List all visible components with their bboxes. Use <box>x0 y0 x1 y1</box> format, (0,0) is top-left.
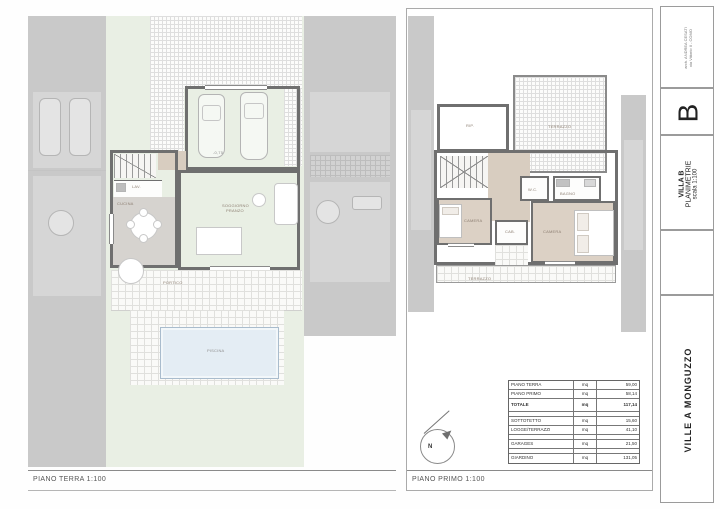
neighbour-left-line <box>28 170 106 171</box>
row-value <box>596 412 639 416</box>
neighbour-left-car1 <box>39 98 61 156</box>
car-2-glass <box>244 103 264 119</box>
fp-top-room-label: RIP. <box>466 124 474 129</box>
row-unit <box>573 449 596 453</box>
fp-bed-right-pillow <box>577 213 589 231</box>
neighbour-right-garage <box>310 92 390 152</box>
neighbour-left-table <box>48 210 74 236</box>
row-label: TOTALE <box>509 399 573 411</box>
fp-bed-left-pillow <box>442 207 459 215</box>
row-unit: mq <box>573 454 596 463</box>
row-value: 21,50 <box>596 440 639 448</box>
fp-cabina-label: CAB. <box>505 230 515 235</box>
neighbour-right-table <box>316 200 340 224</box>
architect-line-2: via Vittorio II - COMO <box>688 29 693 67</box>
garage-door <box>205 85 267 90</box>
table-row: PIANO TERRAmq59,00 <box>509 381 639 390</box>
project-title-text: VILLE A MONGUZZO <box>661 296 715 504</box>
row-label <box>509 449 573 453</box>
row-label: SOTTOTETTO <box>509 417 573 425</box>
row-unit <box>573 412 596 416</box>
row-unit: mq <box>573 417 596 425</box>
row-value: 58,14 <box>596 390 639 398</box>
fp-bed-right-pillow-2 <box>577 235 589 253</box>
kitchen-label: CUCINA <box>117 202 134 207</box>
neighbour-left-car2 <box>69 98 91 156</box>
row-label <box>509 435 573 439</box>
row-unit: mq <box>573 399 596 411</box>
table-row: GARAGESmq21,50 <box>509 440 639 449</box>
pool-label: PISCINA <box>207 349 224 354</box>
table-row-total: TOTALEmq117,14 <box>509 399 639 412</box>
row-label: GIARDINO <box>509 454 573 463</box>
fp-neighbour-left-inner <box>411 110 431 230</box>
laundry-fixture <box>116 183 126 192</box>
row-label: GARAGES <box>509 440 573 448</box>
title-cell-villa: VILLA B PLANIMETRIE scala 1:100 <box>660 135 714 230</box>
garage-level-label: -0,75 <box>213 151 223 156</box>
dining-table <box>196 227 242 255</box>
living-label-2: PRANZO <box>226 209 244 214</box>
entry-path <box>150 88 184 152</box>
fp-bedroom-right-label: CAMERA <box>543 230 561 235</box>
neighbour-right-terrace <box>310 155 390 177</box>
row-value: 41,10 <box>596 426 639 434</box>
fp-bed-right <box>574 210 614 256</box>
villa-title-text: VILLA B PLANIMETRIE scala 1:100 <box>661 136 715 231</box>
portico-table <box>118 258 144 284</box>
left-caption-line-bottom <box>28 490 396 491</box>
row-value: 131,05 <box>596 454 639 463</box>
neighbour-left-rooms <box>33 176 101 296</box>
row-label <box>509 412 573 416</box>
row-unit: mq <box>573 390 596 398</box>
table-row: PIANO PRIMOmq58,14 <box>509 390 639 399</box>
row-unit <box>573 435 596 439</box>
laundry-label: LAV. <box>132 185 141 190</box>
neighbour-right-sofa <box>352 196 382 210</box>
row-unit: mq <box>573 381 596 389</box>
kitchen-chair-2 <box>153 220 162 229</box>
fp-lower-terrace-label: TERRAZZO <box>468 277 491 282</box>
row-label: PIANO PRIMO <box>509 390 573 398</box>
fp-bath-fixture-2 <box>584 179 596 187</box>
title-cell-architect: arch. ANDREA CESATI via Vittorio II - CO… <box>660 6 714 88</box>
right-caption-line <box>407 470 652 471</box>
car-2 <box>240 92 268 160</box>
drawing-scale: scala 1:100 <box>692 168 698 199</box>
compass-north-label: N <box>428 444 432 450</box>
right-plan-caption: PIANO PRIMO 1:100 <box>412 476 485 483</box>
drawing-type: PLANIMETRIE <box>685 160 692 207</box>
area-table: PIANO TERRAmq59,00 PIANO PRIMOmq58,14 TO… <box>508 380 640 464</box>
terrace-label: TERRAZZO <box>548 125 571 130</box>
drawing-sheet: -0,75 LAV. CUCINA SOGGIORNO PRANZO PORTI… <box>0 0 720 509</box>
row-value: 117,14 <box>596 399 639 411</box>
car-1-glass <box>202 105 221 121</box>
sofa <box>274 183 298 225</box>
table-row: LOGGE/TERRAZZImq41,10 <box>509 426 639 435</box>
fp-neighbour-right-inner <box>624 140 643 250</box>
kitchen-chair-4 <box>139 234 148 243</box>
row-value <box>596 435 639 439</box>
car-1 <box>198 94 225 158</box>
fp-lower-terrace <box>436 265 616 283</box>
fp-window-1 <box>448 243 474 247</box>
fp-bath-fixture-1 <box>556 179 570 187</box>
portico-label: PORTICO <box>163 281 183 286</box>
driveway <box>150 16 302 88</box>
title-cell-empty <box>660 230 714 295</box>
fp-stairs-diagonal <box>440 156 488 188</box>
architect-text: arch. ANDREA CESATI via Vittorio II - CO… <box>661 7 715 89</box>
row-value <box>596 449 639 453</box>
kitchen-chair-3 <box>139 208 148 217</box>
villa-letter-text: B <box>672 103 704 122</box>
project-title: VILLE A MONGUZZO <box>683 348 693 453</box>
table-row: GIARDINOmq131,05 <box>509 454 639 463</box>
row-label: LOGGE/TERRAZZI <box>509 426 573 434</box>
fp-bed-left <box>439 204 462 238</box>
left-caption-line-top <box>28 470 396 471</box>
fp-bedroom-left-label: CAMERA <box>464 219 482 224</box>
villa-letter: B <box>661 89 715 136</box>
kitchen-window <box>109 214 114 244</box>
row-unit: mq <box>573 440 596 448</box>
row-value: 15,60 <box>596 417 639 425</box>
kitchen-chair-1 <box>126 220 135 229</box>
fp-bath-label: BAGNO <box>560 192 575 197</box>
fp-loggia <box>495 245 528 265</box>
row-value: 59,00 <box>596 381 639 389</box>
villa-name: VILLA B <box>678 170 685 197</box>
fp-wc-label: W.C. <box>528 188 537 193</box>
left-plan-caption: PIANO TERRA 1:100 <box>33 476 106 483</box>
coffee-table <box>252 193 266 207</box>
title-cell-letter: B <box>660 88 714 135</box>
row-label: PIANO TERRA <box>509 381 573 389</box>
title-cell-project: VILLE A MONGUZZO <box>660 295 714 503</box>
fp-window-2 <box>545 261 575 265</box>
table-row: SOTTOTETTOmq15,60 <box>509 417 639 426</box>
stairs-diagonal <box>114 154 156 178</box>
row-unit: mq <box>573 426 596 434</box>
